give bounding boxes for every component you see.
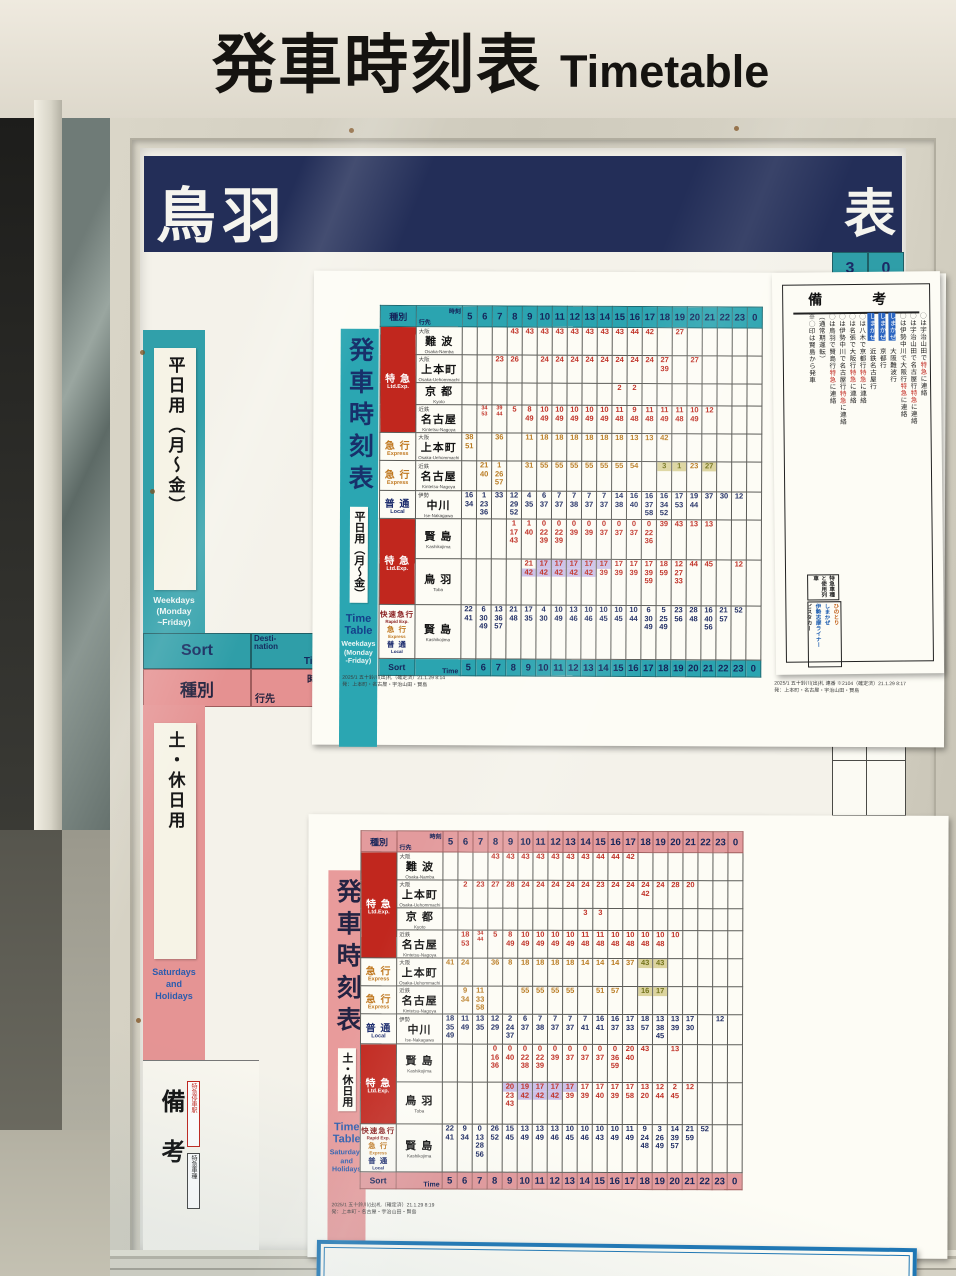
minute: 43: [578, 853, 592, 862]
minute: 48: [672, 415, 686, 424]
minute: 30: [717, 492, 731, 501]
cell-11: 737: [551, 491, 566, 519]
cell-12: [567, 383, 582, 405]
cell-0: [747, 434, 762, 462]
cell-15: 1641: [592, 1014, 607, 1044]
minute: 48: [627, 415, 641, 424]
minute: 28: [668, 881, 682, 890]
cell-8: 43: [507, 327, 522, 355]
cell-14: 24: [578, 880, 593, 908]
weekday-poster-timetable-en: TimeTable: [344, 613, 372, 637]
cell-15: 1148: [593, 930, 608, 958]
cell-20: [668, 987, 683, 1015]
minute: 57: [717, 615, 731, 624]
hour-header-17: 17: [642, 307, 657, 328]
display-case: 鳥羽 表 30 2 30 平日用（月～金） Weekdays (Monday ~…: [110, 118, 956, 1276]
cell-11: 55: [533, 986, 548, 1014]
minute: 49: [476, 623, 490, 632]
hour-footer-6: 6: [457, 1172, 472, 1189]
cell-16: 24: [608, 880, 623, 908]
minute: 49: [537, 414, 551, 423]
destination-ja: 上本町: [397, 964, 442, 980]
minute: 39: [668, 1024, 682, 1033]
sort-corner: Time: [396, 1172, 442, 1189]
hour-header-5: 5: [462, 306, 477, 327]
cell-5: [462, 461, 477, 491]
minute: 42: [548, 1091, 562, 1100]
cell-18: 52549: [656, 606, 671, 660]
minute: 55: [597, 462, 611, 471]
minute: 39: [612, 569, 626, 578]
minute: 55: [582, 462, 596, 471]
cell-6: 12336: [476, 491, 491, 519]
cell-7: [492, 327, 507, 355]
remark-note: しまかぜ 近鉄名古屋行: [867, 313, 878, 558]
cell-15: 1740: [592, 1082, 607, 1124]
destination-en: Kyoto: [397, 924, 442, 929]
minute: 34: [458, 1133, 472, 1142]
cell-0: [747, 462, 762, 492]
cell-9: 2142: [521, 559, 536, 605]
destination-en: Kashikojima: [397, 1068, 442, 1073]
cell-23: [713, 853, 728, 881]
cell-20: 245: [667, 1083, 682, 1125]
minute: 38: [612, 501, 626, 510]
cell-16: 1640: [626, 491, 641, 519]
cell-18: 1320: [637, 1083, 652, 1125]
cell-0: [728, 931, 743, 959]
cell-14: 3: [578, 908, 593, 930]
text-line: Holidays: [330, 1166, 364, 1174]
cell-23: 52: [731, 606, 746, 660]
remarks-title: 備 考: [793, 288, 919, 314]
type-ja: 特 急: [361, 895, 396, 910]
cell-18: 92448: [637, 1125, 652, 1173]
destination-ja: 名古屋: [416, 411, 461, 427]
board-holiday-panel: 土・休日用 Saturdays and Holidays: [143, 705, 205, 1061]
minute: 24: [578, 881, 592, 890]
cell-9: 1735: [521, 605, 536, 659]
cell-9: 28: [503, 880, 518, 908]
holiday-footnote-2: 発：上本町・名古屋・宇治山田・賢島: [332, 1209, 435, 1216]
cell-17: 13: [642, 434, 657, 462]
table-row: 鳥 羽Toba202343194217421742173917391740173…: [360, 1082, 742, 1125]
remark-segment: 京都行: [878, 341, 885, 369]
cell-18: 1149: [657, 406, 672, 434]
remark-note: ◯は伊勢中川で大阪行特急に連絡: [897, 312, 908, 557]
destination-ja: 上本町: [397, 886, 442, 902]
minute: 5: [488, 931, 502, 940]
minute: 27: [488, 881, 502, 890]
cell-5: [461, 559, 476, 605]
cell-18: [657, 384, 672, 406]
minute: 13: [668, 1045, 682, 1054]
cell-8: 27: [488, 880, 503, 908]
remark-segment: ※◯印は賢島から発車: [807, 313, 815, 383]
minute: 23: [593, 881, 607, 890]
cell-13: 1049: [563, 930, 578, 958]
type-en: Local: [379, 649, 414, 654]
hour-footer-5: 5: [461, 659, 476, 676]
cell-17: 24: [623, 880, 638, 908]
minute: 43: [508, 327, 522, 336]
hour-header-9: 9: [522, 306, 537, 327]
minute: 18: [537, 434, 551, 443]
destination-cell: 伊勢中川Ise-Nakagawa: [415, 491, 461, 519]
minute: 44: [628, 328, 642, 337]
cell-6: 1853: [458, 930, 473, 958]
holiday-timetable-poster: 発車時刻表 土・休日用 TimeTable SaturdaysandHolida…: [307, 814, 948, 1259]
cell-12: [548, 908, 563, 930]
remark-segment: ◯は宇治山田で: [918, 312, 926, 361]
type-cell: 急 行Express: [361, 986, 397, 1014]
sort-corner: Time: [415, 659, 461, 676]
cell-18: 43: [637, 1045, 652, 1083]
cell-8: [488, 908, 503, 930]
minute: 12: [732, 560, 746, 569]
minute: 51: [593, 987, 607, 996]
minute: 23: [493, 355, 507, 364]
hour-footer-13: 13: [581, 659, 596, 676]
hour-header-7: 7: [492, 306, 507, 327]
cell-20: 1339: [667, 1015, 682, 1045]
remark-segment: に連絡: [899, 396, 906, 417]
cell-17: 2040: [622, 1044, 637, 1082]
cell-7: [472, 1044, 487, 1082]
cell-16: 1637: [607, 1014, 622, 1044]
type-header: 種別: [361, 831, 397, 852]
cell-13: 43: [563, 852, 578, 880]
cell-8: [488, 986, 503, 1014]
minute: 49: [641, 623, 655, 632]
minute: 58: [642, 509, 656, 518]
minute: 11: [522, 434, 536, 443]
notice-inner: 1月30日(土)～当分の間の土・休日および平日時刻表です ※特急列車の車種は変更…: [322, 1247, 910, 1276]
minute: 14: [578, 959, 592, 968]
cell-11: 1742: [532, 1082, 547, 1124]
minute: 49: [552, 614, 566, 623]
table-row: 急 行Express近鉄名古屋Kintetsu-Nagoya9341133585…: [361, 986, 743, 1015]
cell-15: 14: [593, 958, 608, 986]
hour-footer-21: 21: [682, 1173, 697, 1190]
minute: 36: [477, 509, 491, 518]
hour-header-0: 0: [728, 832, 743, 853]
cell-5: [462, 327, 477, 355]
cell-5: 2241: [461, 605, 476, 659]
cell-19: [653, 909, 668, 931]
destination-en: Ise-Nakagawa: [416, 513, 461, 518]
wall-lower: [0, 830, 62, 1130]
hour-header-14: 14: [597, 306, 612, 327]
cell-22: 30: [716, 492, 731, 520]
hour-footer-0: 0: [727, 1173, 742, 1190]
cell-23: [712, 1083, 727, 1125]
cell-0: [747, 356, 762, 384]
hour-header-16: 16: [627, 306, 642, 327]
cell-7: 3444: [473, 930, 488, 958]
header-corner: 時刻行先: [416, 306, 462, 327]
minute: 49: [548, 939, 562, 948]
minute: 35: [473, 1023, 487, 1032]
hour-footer-17: 17: [622, 1172, 637, 1189]
cell-22: [698, 931, 713, 959]
board-title-fragment-right: 表: [844, 172, 896, 247]
cell-7: 12657: [492, 461, 507, 491]
hour-footer-17: 17: [641, 660, 656, 677]
destination-en: Kyoto: [416, 399, 461, 404]
table-row: 特 急Ltd.Exp.賢 島Kashikojima016360400223802…: [360, 1044, 742, 1083]
minute: 24: [563, 881, 577, 890]
cell-6: [458, 852, 473, 880]
hour-footer-20: 20: [686, 660, 701, 677]
minute: 52: [732, 606, 746, 615]
remark-note: ◯は名張で大阪行特急に連絡: [846, 313, 857, 558]
cell-8: 36: [488, 958, 503, 986]
cell-13: 43: [582, 327, 597, 355]
remark-segment: 特急: [909, 389, 916, 403]
cell-20: 1944: [686, 492, 701, 520]
cell-6: [477, 383, 492, 405]
remark-segment: しまかぜ: [888, 313, 895, 341]
legend-train-name: 伊勢志摩ライナー: [813, 603, 822, 665]
cell-23: [731, 520, 746, 560]
cell-20: 23: [687, 462, 702, 492]
text-line: Time: [345, 613, 373, 625]
remark-segment: （通常期運転）: [817, 313, 825, 362]
remark-segment: ◯は伊勢中川で大阪行: [898, 312, 906, 382]
cell-6: 934: [457, 1124, 472, 1172]
cell-6: [457, 1044, 472, 1082]
destination-ja: 上本町: [417, 361, 462, 377]
cell-19: 43: [653, 959, 668, 987]
minute: 37: [612, 529, 626, 538]
sort-label: Sort: [360, 1172, 396, 1189]
cell-14: 1046: [577, 1124, 592, 1172]
cell-12: 18: [548, 958, 563, 986]
cell-6: [457, 1082, 472, 1124]
hour-footer-14: 14: [577, 1172, 592, 1189]
hour-header-21: 21: [702, 307, 717, 328]
destination-en: Osaka-Uehommachi: [417, 377, 462, 382]
cell-11: 1049: [551, 605, 566, 659]
minute: 24: [518, 881, 532, 890]
minute: 53: [458, 939, 472, 948]
legend-train-name: ひのとり: [831, 603, 840, 665]
minute: 30: [683, 1024, 697, 1033]
cell-5: 3851: [462, 433, 477, 461]
cell-14: 737: [596, 491, 611, 519]
minute: 49: [653, 1142, 667, 1151]
cell-6: 1149: [457, 1014, 472, 1044]
minute: 43: [503, 1100, 517, 1109]
cell-21: 1730: [682, 1015, 697, 1045]
cell-17: 37: [623, 958, 638, 986]
cell-12: 1346: [547, 1124, 562, 1172]
destination-cell: 近鉄名古屋Kintetsu-Nagoya: [416, 461, 462, 491]
remarks-legend-title-box: 特急車種と使用列車: [807, 574, 839, 600]
minute: 40: [477, 470, 491, 479]
cell-22: [698, 909, 713, 931]
cell-15: 1739: [611, 559, 626, 605]
cell-23: [732, 384, 747, 406]
glass-lower: [62, 830, 110, 1130]
cell-20: 13: [667, 1045, 682, 1083]
holiday-poster-subtitle-box: 土・休日用: [338, 1048, 356, 1111]
destination-en: Toba: [397, 1108, 442, 1113]
cell-12: 24: [548, 880, 563, 908]
minute: 59: [642, 577, 656, 586]
type-cell: 快速急行Rapid Exp.急 行Express普 通Local: [360, 1124, 396, 1172]
cell-12: 1049: [548, 930, 563, 958]
minute: 43: [548, 853, 562, 862]
hour-footer-8: 8: [506, 659, 521, 676]
cell-15: 24: [612, 355, 627, 383]
minute: 42: [522, 568, 536, 577]
type-header: 種別: [380, 305, 416, 326]
cell-19: 32649: [652, 1125, 667, 1173]
minute: 13: [702, 520, 716, 529]
cell-13: 1049: [582, 405, 597, 433]
minute: 45: [563, 1133, 577, 1142]
cell-23: [712, 1045, 727, 1083]
cell-10: 1049: [518, 930, 533, 958]
cell-20: [687, 384, 702, 406]
destination-ja: 上本町: [416, 439, 461, 455]
minute: 55: [567, 462, 581, 471]
weekday-poster-subtitle-box: 平日用（月～金）: [350, 507, 368, 603]
board-weekday-strip: 平日用（月～金）: [154, 348, 196, 590]
minute: 59: [657, 569, 671, 578]
remark-segment: 特急: [838, 390, 845, 404]
hour-header-0: 0: [747, 307, 762, 328]
minute: 49: [623, 1134, 637, 1143]
destination-en: Kintetsu-Nagoya: [416, 427, 461, 432]
minute: 49: [443, 1032, 457, 1041]
type-cell: 急 行Express: [380, 460, 416, 490]
cell-18: 43: [638, 959, 653, 987]
cell-7: [491, 559, 506, 605]
table-row: 急 行Express近鉄名古屋Kintetsu-Nagoya2140126573…: [380, 460, 762, 492]
board-title-band: 鳥羽 表: [144, 156, 902, 252]
cell-5: [462, 383, 477, 405]
minute: 14: [593, 959, 607, 968]
cell-11: [533, 908, 548, 930]
hour-footer-7: 7: [491, 659, 506, 676]
destination-ja: 鳥 羽: [397, 1092, 442, 1108]
cell-23: [713, 931, 728, 959]
hour-header-10: 10: [537, 306, 552, 327]
page-title: 発車時刻表Timetable: [212, 14, 769, 106]
cell-21: 45: [701, 560, 716, 606]
minute: 33: [623, 1024, 637, 1033]
rust-spot: [140, 350, 145, 355]
minute: 18: [597, 434, 611, 443]
board-holiday-en-2: Holidays: [143, 991, 205, 1001]
hour-footer-15: 15: [592, 1172, 607, 1189]
minute: 18: [582, 434, 596, 443]
remark-segment: ◯は八木で京都行: [858, 313, 866, 369]
cell-8: [506, 559, 521, 605]
minute: 55: [518, 987, 532, 996]
minute: 39: [582, 528, 596, 537]
cell-5: 1634: [461, 491, 476, 519]
destination-en: Osaka-Namba: [397, 874, 442, 879]
minute: 20: [683, 881, 697, 890]
cell-15: 18: [612, 433, 627, 461]
remark-note: ◯は宇治山田で名古屋行特急に連絡: [907, 312, 918, 557]
minute: 40: [503, 1053, 517, 1062]
remark-segment: しまかぜ: [868, 313, 875, 341]
minute: 37: [597, 528, 611, 537]
cell-13: 24: [582, 355, 597, 383]
destination-cell: 大阪上本町Osaka-Uehommachi: [397, 958, 443, 986]
minute: 42: [657, 434, 671, 443]
destination-en: Ise-Nakagawa: [397, 1037, 442, 1042]
cell-20: 1049: [687, 406, 702, 434]
cell-23: 12: [712, 1015, 727, 1045]
cell-16: 037: [626, 519, 641, 559]
cell-18: 2739: [657, 356, 672, 384]
destination-cell: 大阪難 波Osaka-Namba: [416, 327, 462, 355]
cell-0: [728, 881, 743, 909]
type-cell: 急 行Express: [380, 432, 416, 460]
hour-header-15: 15: [593, 831, 608, 852]
cell-22: [698, 881, 713, 909]
minute: 54: [627, 462, 641, 471]
minute: 49: [518, 1133, 532, 1142]
cell-15: 44: [593, 852, 608, 880]
minute: 44: [687, 501, 701, 510]
board-weekday-label: 平日用（月～金）: [163, 348, 188, 590]
hour-footer-7: 7: [472, 1172, 487, 1189]
cell-7: 33: [491, 491, 506, 519]
cell-8: [507, 433, 522, 461]
minute: 41: [462, 614, 476, 623]
cell-13: 737: [562, 1014, 577, 1044]
cell-10: [518, 908, 533, 930]
minute: 45: [503, 1133, 517, 1142]
minute: 45: [702, 560, 716, 569]
hour-header-15: 15: [612, 306, 627, 327]
cell-17: 63049: [641, 606, 656, 660]
cell-13: 737: [581, 491, 596, 519]
minute: 41: [443, 1133, 457, 1142]
floor-area: [0, 1130, 110, 1276]
destination-cell: 大阪上本町Osaka-Uehommachi: [397, 880, 443, 908]
hour-header-21: 21: [683, 832, 698, 853]
hour-footer-19: 19: [671, 660, 686, 677]
board-remarks-column: 備考 特急停車駅 特急車種: [143, 1060, 259, 1251]
cell-23: [712, 1125, 727, 1173]
hour-header-8: 8: [507, 306, 522, 327]
minute: 55: [537, 462, 551, 471]
minute: 59: [608, 1062, 622, 1071]
cell-0: [727, 1083, 742, 1125]
minute: 36: [488, 959, 502, 968]
cell-12: 55: [567, 461, 582, 491]
minute: 56: [473, 1150, 487, 1159]
table-row: 京 都Kyoto22: [380, 382, 762, 406]
minute: 37: [582, 500, 596, 509]
hour-footer-9: 9: [502, 1172, 517, 1189]
minute: 42: [643, 328, 657, 337]
cell-8: 122952: [506, 491, 521, 519]
cell-17: 1149: [622, 1124, 637, 1172]
text-line: -Friday): [341, 658, 375, 667]
hour-header-12: 12: [548, 831, 563, 852]
type-cell: 普 通Local: [360, 1014, 396, 1044]
minute: 49: [503, 939, 517, 948]
